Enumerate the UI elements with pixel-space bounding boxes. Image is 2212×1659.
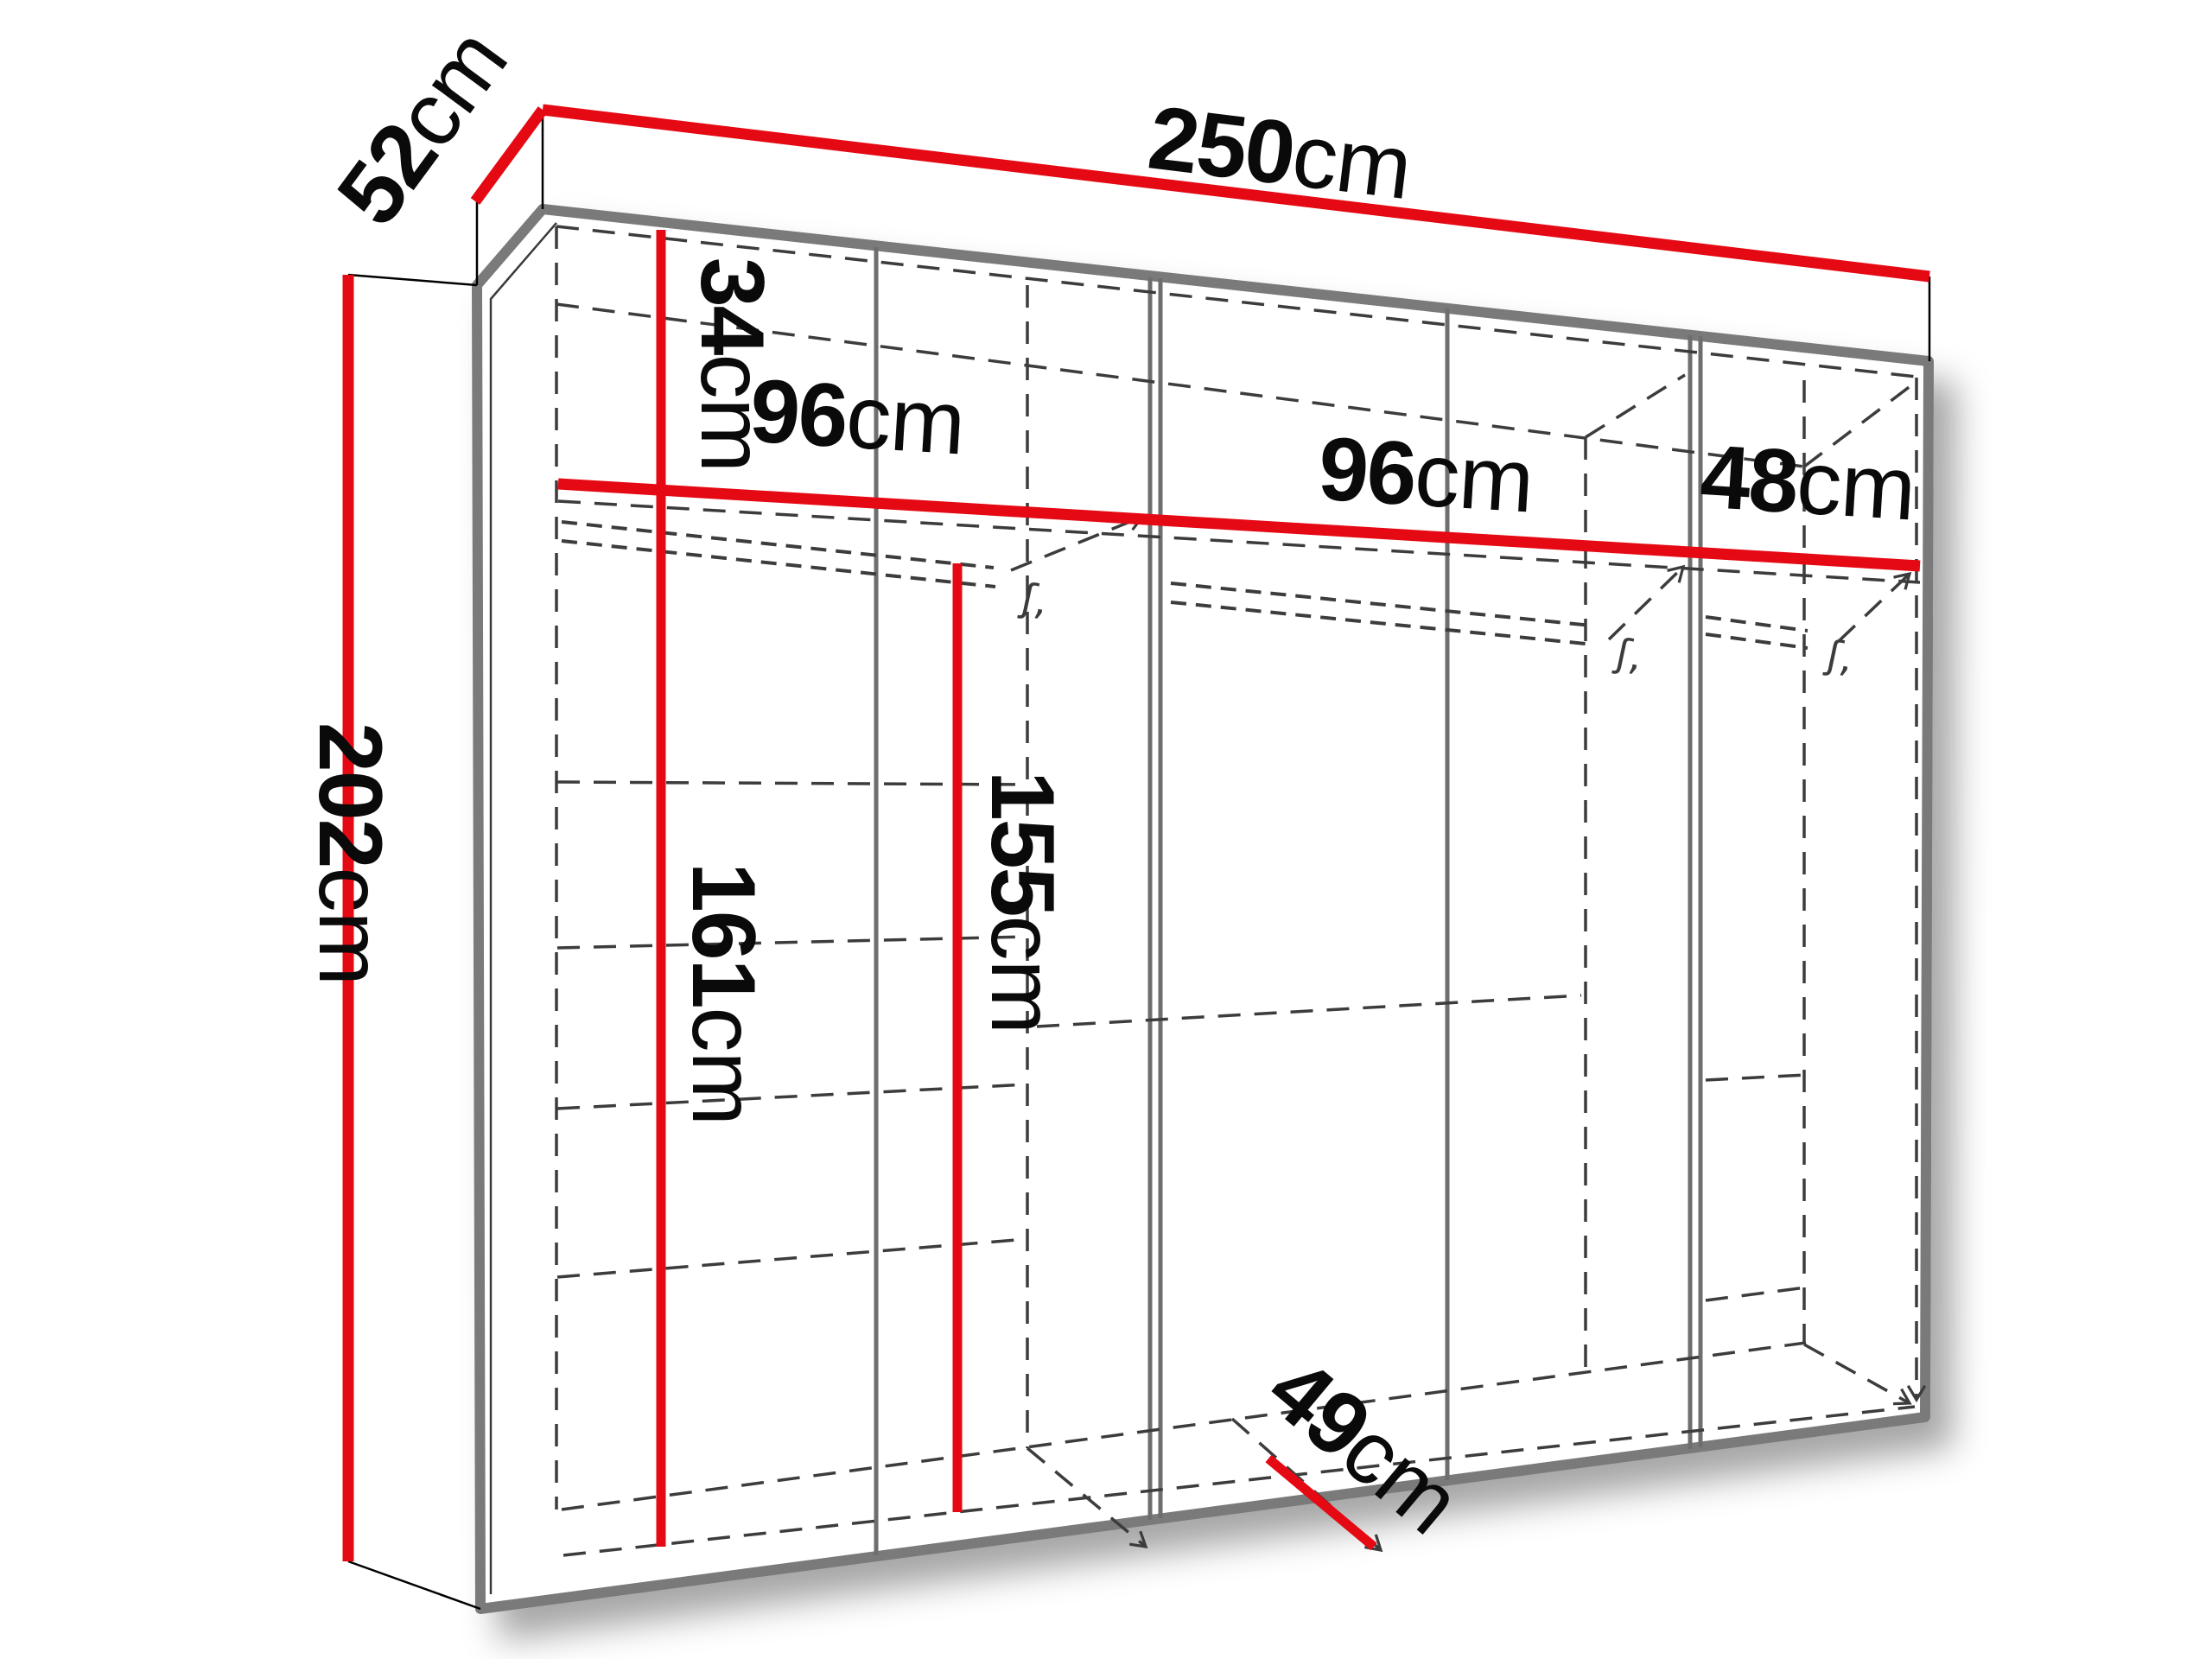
- diagram-page: ʃ, ʃ, ʃ, 250cm 52cm 202cm 34cm 96cm 96cm…: [0, 0, 2212, 1659]
- label-depth-52: 52cm: [318, 11, 526, 244]
- label-section1-96: 96cm: [747, 361, 968, 474]
- label-section3-48: 48cm: [1698, 427, 1918, 540]
- height-extension-top: [348, 275, 477, 285]
- label-section2-96: 96cm: [1316, 419, 1536, 532]
- label-height-202: 202cm: [300, 722, 400, 985]
- label-width-250: 250cm: [1143, 87, 1416, 219]
- height-extension-bottom: [348, 1561, 480, 1609]
- label-rail-lower-155: 155cm: [972, 771, 1072, 1033]
- wardrobe-dimension-diagram: ʃ, ʃ, ʃ, 250cm 52cm 202cm 34cm 96cm 96cm…: [0, 0, 2212, 1659]
- label-left-lower-161: 161cm: [673, 862, 773, 1125]
